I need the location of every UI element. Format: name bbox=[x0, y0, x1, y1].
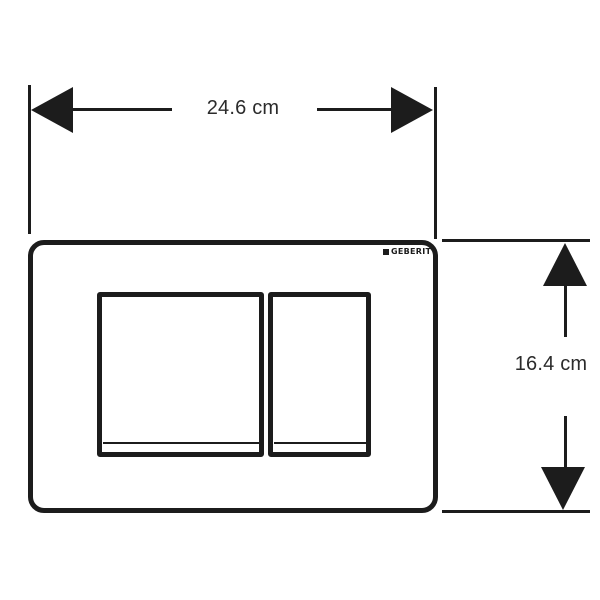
extension-line-right-top bbox=[434, 87, 437, 239]
up-arrowhead-icon bbox=[543, 243, 587, 286]
large-button-bevel-line bbox=[103, 442, 259, 444]
flush-plate-dimension-diagram: 24.6 cm GEBERIT 16.4 cm bbox=[0, 0, 600, 600]
small-flush-button bbox=[268, 292, 371, 457]
geberit-logo-text: GEBERIT bbox=[391, 248, 431, 256]
large-flush-button bbox=[97, 292, 264, 457]
width-dimension-label: 24.6 cm bbox=[193, 97, 293, 120]
height-dimension-line-lower-segment bbox=[564, 416, 567, 468]
height-dimension-label: 16.4 cm bbox=[501, 353, 600, 376]
height-dimension-line-upper-segment bbox=[564, 285, 567, 337]
width-dimension-line-left-segment bbox=[72, 108, 172, 111]
width-dimension-line-right-segment bbox=[317, 108, 392, 111]
small-button-bevel-line bbox=[274, 442, 366, 444]
geberit-logo: GEBERIT bbox=[383, 246, 431, 258]
extension-line-top bbox=[442, 239, 590, 242]
geberit-logo-square-icon bbox=[383, 249, 389, 255]
down-arrowhead-icon bbox=[541, 467, 585, 510]
left-arrowhead-icon bbox=[31, 87, 73, 133]
extension-line-bottom bbox=[442, 510, 590, 513]
right-arrowhead-icon bbox=[391, 87, 433, 133]
